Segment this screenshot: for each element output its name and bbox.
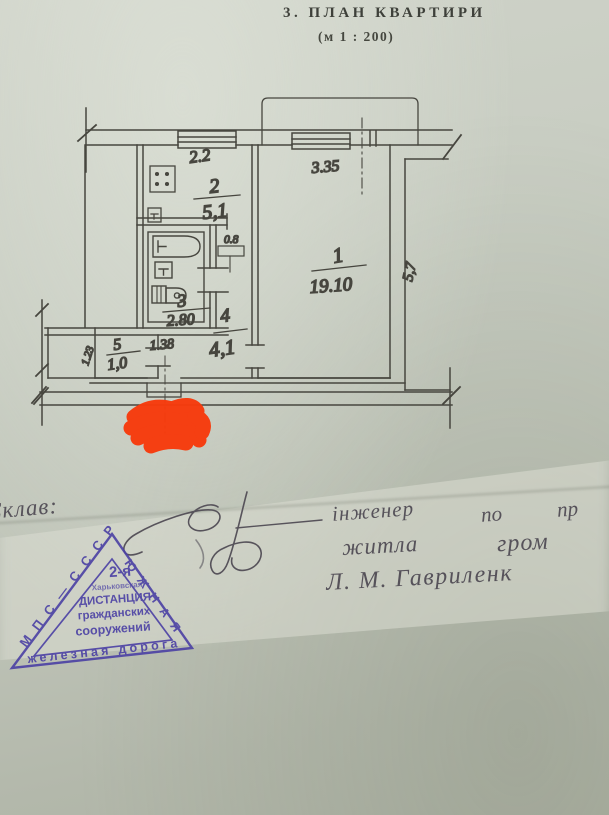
handwriting-line2-word2: гром bbox=[496, 529, 549, 559]
dim-room1-width: 3.35 bbox=[310, 158, 340, 177]
document-graphics: 2.2 3.35 2 5,1 0.8 1 19.10 5,7 3 2.80 4 … bbox=[0, 0, 609, 815]
photographed-document: { "page": { "title": "3. ПЛАН КВАРТИРИ",… bbox=[0, 0, 609, 815]
kitchen-sink-icon bbox=[148, 208, 161, 222]
balcony-outline bbox=[262, 98, 418, 145]
dim-room1-depth: 5,7 bbox=[400, 260, 420, 283]
handwriting-line2-word1: житла bbox=[341, 531, 419, 561]
room3-number: 3 bbox=[175, 290, 187, 311]
stove-icon bbox=[150, 166, 175, 192]
dim-bath-width: 1.38 bbox=[149, 337, 175, 354]
room5-area: 1,0 bbox=[106, 354, 128, 374]
room2-area: 5,1 bbox=[201, 199, 228, 223]
handwriting-line1-word2: по bbox=[480, 501, 503, 527]
dim-duct: 0.8 bbox=[224, 234, 239, 246]
room2-number: 2 bbox=[208, 175, 220, 198]
handwriting-line1-word3: пр bbox=[556, 496, 579, 522]
railway-stamp: МПС—СССР ЮЖНАЯ железная дорога 2-я Харьк… bbox=[12, 521, 192, 668]
washbasin-icon bbox=[155, 262, 172, 278]
stamp-bottom-edge-text: железная дорога bbox=[26, 636, 180, 666]
signature-handwriting bbox=[124, 492, 322, 574]
room4-number: 4 bbox=[219, 305, 231, 327]
redaction-scribble bbox=[131, 405, 203, 446]
room4-area: 4,1 bbox=[207, 335, 236, 362]
floor-plan: 2.2 3.35 2 5,1 0.8 1 19.10 5,7 3 2.80 4 … bbox=[32, 98, 461, 433]
stamp-center-line1: 2-я bbox=[108, 563, 131, 581]
room5-number: 5 bbox=[112, 336, 122, 354]
stamp-center-line5: сооружений bbox=[75, 619, 151, 638]
dim-kitchen-width: 2.2 bbox=[188, 145, 212, 167]
living-room-window bbox=[292, 133, 350, 149]
room1-area: 19.10 bbox=[309, 274, 354, 298]
room3-area: 2.80 bbox=[166, 311, 195, 330]
bathtub-icon bbox=[153, 236, 200, 257]
room1-number: 1 bbox=[331, 242, 346, 267]
